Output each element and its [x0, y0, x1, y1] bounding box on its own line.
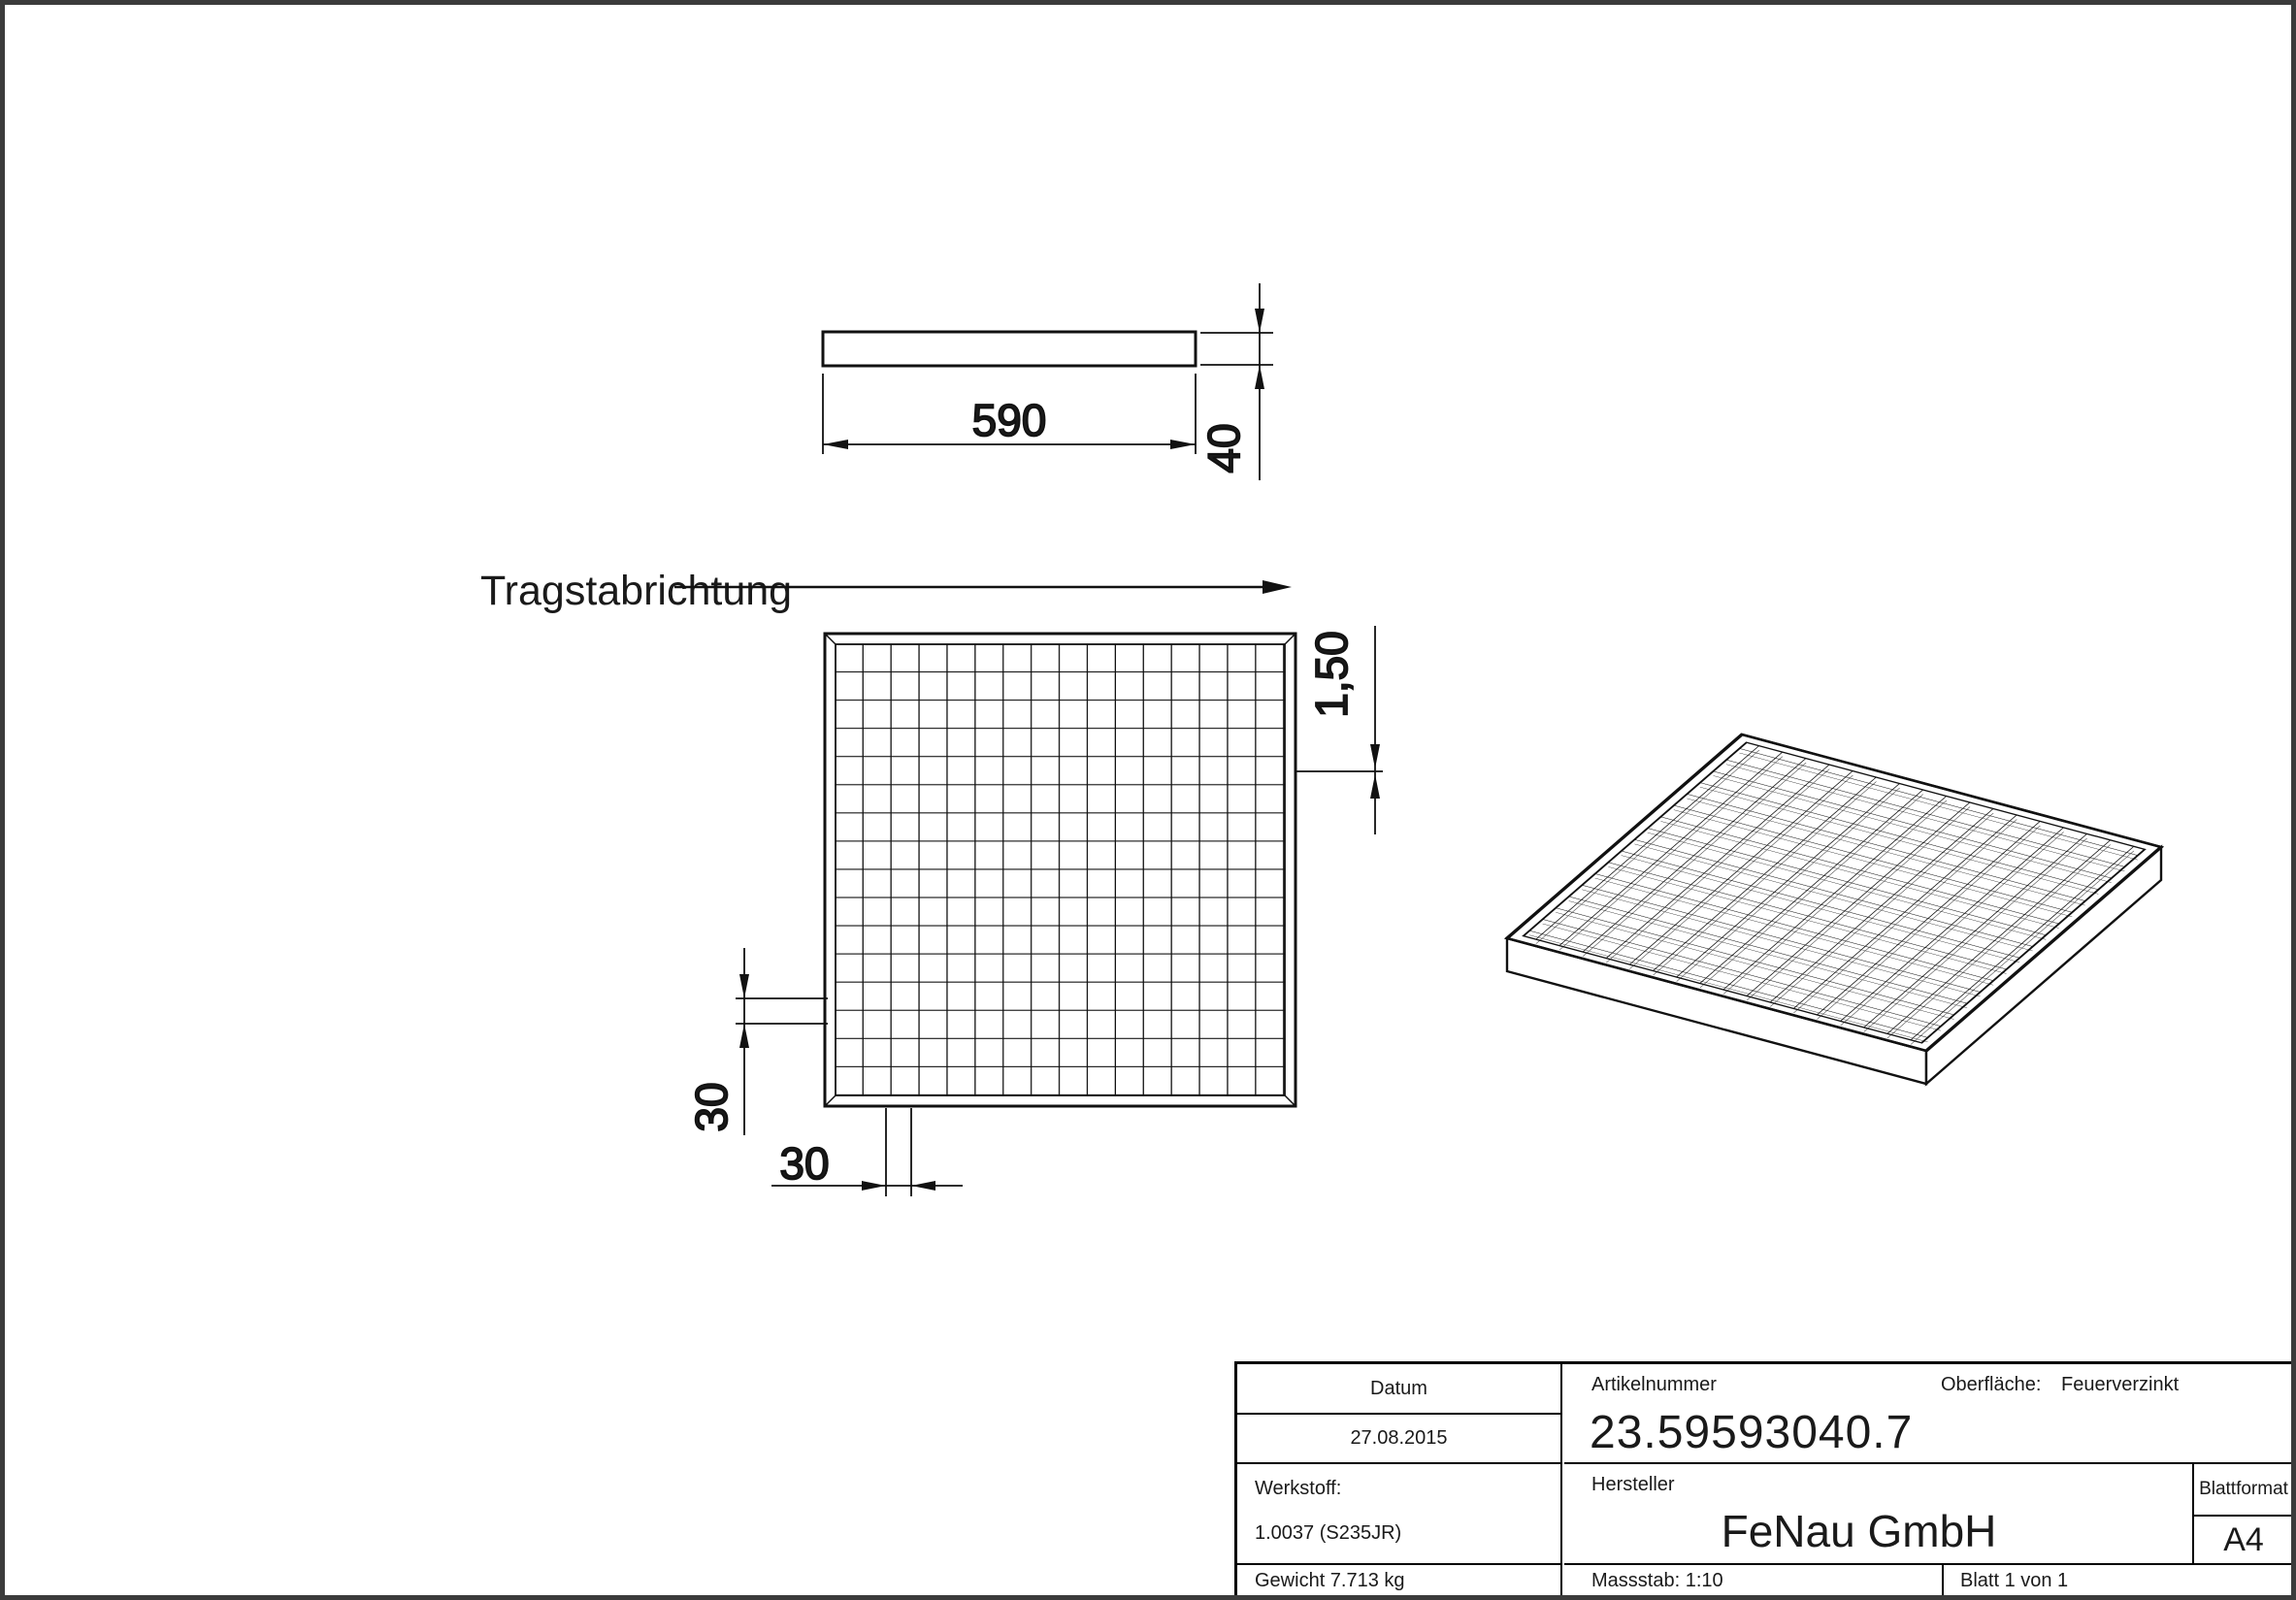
oberflaeche-label: Oberfläche: — [1941, 1374, 2041, 1396]
blatt-value: Blatt 1 von 1 — [1960, 1570, 2068, 1592]
oberflaeche-value: Feuerverzinkt — [2061, 1374, 2179, 1396]
isometric-view — [1507, 735, 2161, 1084]
title-block-right-column: Artikelnummer Oberfläche: Feuerverzinkt … — [1564, 1364, 2293, 1597]
dim-30v-text: 30 — [686, 1082, 737, 1131]
massstab-cell: Massstab: 1:10 — [1564, 1565, 1944, 1597]
dimension-bar-thickness: 1,50 — [1296, 626, 1383, 834]
blattformat-value: A4 — [2194, 1515, 2293, 1563]
title-block: Datum 27.08.2015 Werkstoff: 1.0037 (S235… — [1234, 1361, 2296, 1600]
hersteller-band: Hersteller FeNau GmbH Blattformat A4 — [1564, 1462, 2293, 1563]
hersteller-label: Hersteller — [1591, 1474, 1675, 1496]
datum-value: 27.08.2015 — [1350, 1427, 1447, 1450]
blattformat-column: Blattformat A4 — [2192, 1464, 2293, 1563]
werkstoff-label: Werkstoff: — [1255, 1478, 1341, 1500]
direction-annotation: Tragstabrichtung — [480, 568, 1292, 614]
artikelnummer-label: Artikelnummer — [1591, 1374, 1717, 1396]
side-view — [823, 332, 1196, 366]
blatt-cell: Blatt 1 von 1 — [1944, 1565, 2293, 1597]
hersteller-value: FeNau GmbH — [1564, 1505, 2153, 1557]
dimension-pitch-horizontal: 30 — [771, 1108, 963, 1196]
werkstoff-value: 1.0037 (S235JR) — [1255, 1522, 1401, 1545]
artikelnummer-value: 23.59593040.7 — [1590, 1406, 1913, 1459]
dimension-pitch-vertical: 30 — [686, 948, 828, 1135]
hersteller-cell: Hersteller FeNau GmbH — [1564, 1464, 2192, 1563]
dimension-height-40: 40 — [1198, 283, 1273, 480]
datum-label-cell: Datum — [1237, 1364, 1560, 1413]
werkstoff-cell: Werkstoff: 1.0037 (S235JR) — [1237, 1462, 1560, 1563]
title-block-left-column: Datum 27.08.2015 Werkstoff: 1.0037 (S235… — [1237, 1364, 1562, 1597]
technical-drawing-page: 590 40 Tragstabrichtung — [0, 0, 2296, 1600]
direction-arrow-icon — [1263, 580, 1292, 594]
datum-label: Datum — [1370, 1378, 1427, 1400]
massstab-value: Massstab: 1:10 — [1591, 1570, 1723, 1592]
blattformat-label: Blattformat — [2194, 1464, 2293, 1515]
datum-value-cell: 27.08.2015 — [1237, 1413, 1560, 1462]
dim-150-text: 1,50 — [1306, 631, 1357, 718]
gewicht-cell: Gewicht 7.713 kg — [1237, 1563, 1560, 1597]
gewicht-value: Gewicht 7.713 kg — [1255, 1570, 1405, 1592]
direction-label: Tragstabrichtung — [480, 568, 792, 614]
dim-40-text: 40 — [1198, 423, 1249, 473]
dimension-length-590: 590 — [823, 374, 1196, 454]
bottom-band: Massstab: 1:10 Blatt 1 von 1 — [1564, 1563, 2293, 1597]
dim-30h-text: 30 — [779, 1138, 829, 1189]
artikelnummer-cell: Artikelnummer Oberfläche: Feuerverzinkt … — [1564, 1364, 2293, 1462]
front-view-grating — [825, 634, 1296, 1106]
dim-590-text: 590 — [972, 395, 1047, 445]
